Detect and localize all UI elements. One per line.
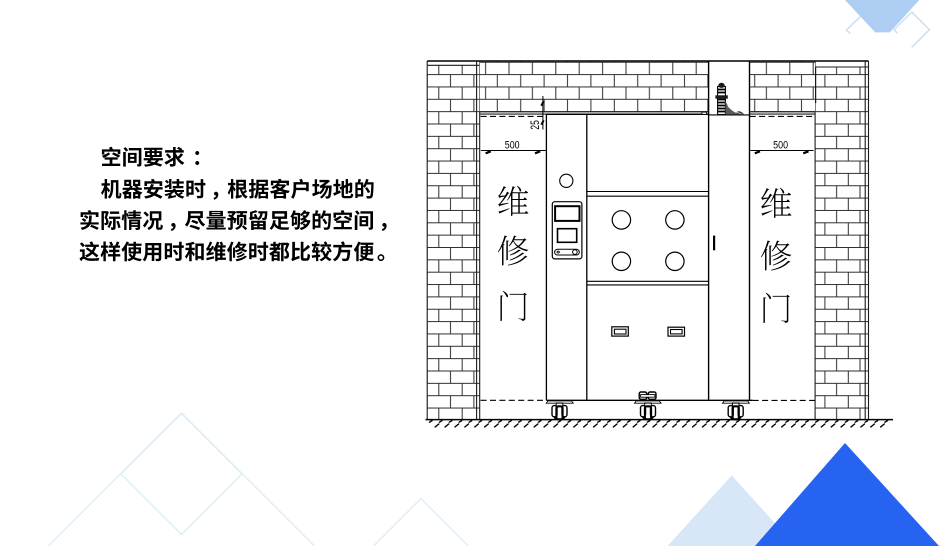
svg-text:25: 25 xyxy=(530,120,543,130)
svg-text:500: 500 xyxy=(773,140,788,152)
svg-text:500: 500 xyxy=(505,140,520,152)
